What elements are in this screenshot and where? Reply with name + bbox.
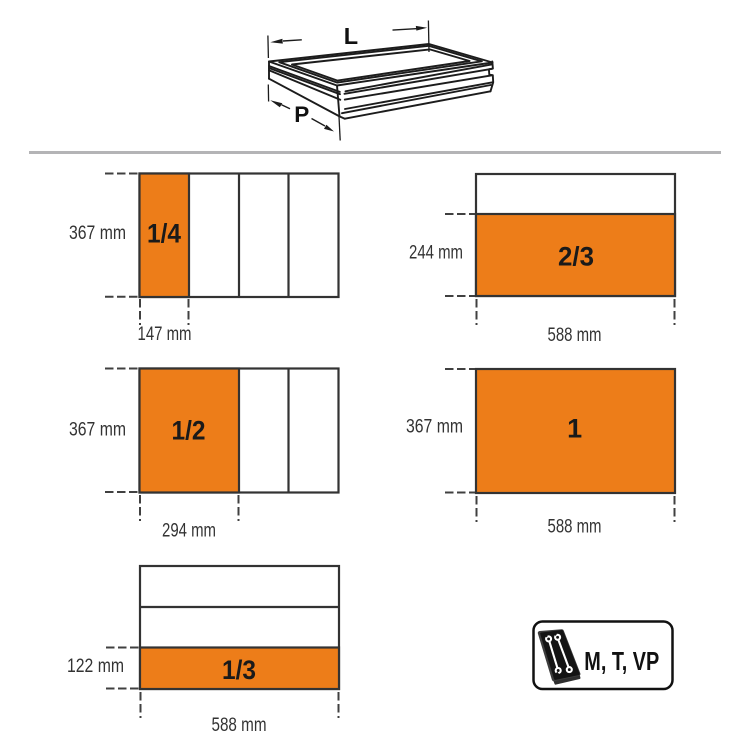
svg-text:588 mm: 588 mm <box>212 715 267 736</box>
svg-text:1/3: 1/3 <box>222 655 256 685</box>
svg-text:1/2: 1/2 <box>172 416 206 446</box>
svg-text:2/3: 2/3 <box>558 242 594 272</box>
svg-text:L: L <box>344 23 358 49</box>
svg-text:1: 1 <box>567 414 582 444</box>
svg-text:588 mm: 588 mm <box>548 325 602 346</box>
svg-text:367 mm: 367 mm <box>69 223 126 244</box>
svg-text:244 mm: 244 mm <box>409 243 463 264</box>
svg-text:294 mm: 294 mm <box>162 521 216 542</box>
svg-text:1/4: 1/4 <box>147 219 181 249</box>
svg-text:147 mm: 147 mm <box>138 324 192 345</box>
svg-text:367 mm: 367 mm <box>69 420 126 441</box>
svg-text:588 mm: 588 mm <box>548 517 602 538</box>
svg-text:367 mm: 367 mm <box>406 417 463 438</box>
svg-text:P: P <box>294 102 309 127</box>
svg-text:122 mm: 122 mm <box>67 656 124 677</box>
svg-text:M, T, VP: M, T, VP <box>584 646 659 676</box>
